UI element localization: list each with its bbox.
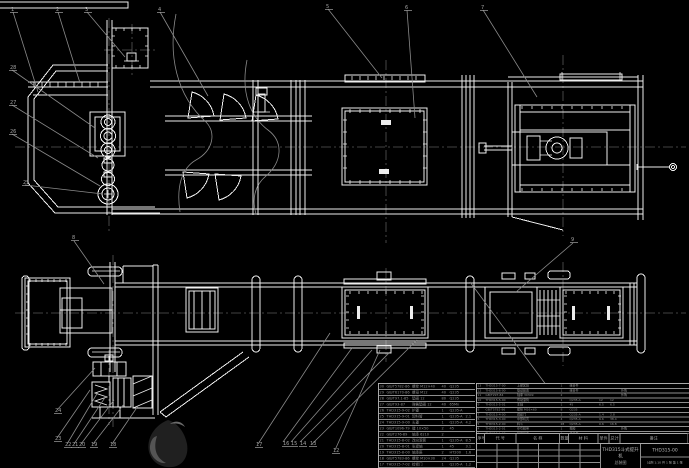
bom-cell-name: 螺栓 M12×40	[412, 384, 442, 389]
bom-cell-name: 轴承座	[412, 450, 442, 455]
bom-cell-no: 22	[380, 432, 387, 437]
balloon-label: 13	[310, 441, 316, 447]
bom-cell-material: Q235-A	[450, 414, 466, 419]
bom-header-no: 序号	[477, 434, 485, 444]
bom-cell-code: THD315-9-00	[387, 420, 413, 425]
bom-cell-total-weight: 12	[610, 398, 621, 402]
bom-cell-total-weight	[471, 432, 476, 437]
signature-cell	[559, 462, 580, 468]
bom-cell-unit-weight	[599, 408, 610, 412]
bom-cell-code: THD315-7-02	[387, 462, 413, 467]
bom-cell-no: 26	[380, 408, 387, 413]
drawing-number-cell: THD315-00 比例 1:10 共 1 张 第 1 张	[641, 444, 689, 468]
bom-cell-no: 24	[380, 420, 387, 425]
bom-cell-code: THD315-8-00	[387, 450, 413, 455]
bom-cell-qty: 40	[442, 402, 450, 407]
bom-cell-code: GB/T5782-86	[387, 384, 413, 389]
balloon-label: 27	[10, 100, 16, 106]
bom-cell-remark: 外购	[621, 427, 689, 431]
bom-cell-unit-weight: 6.5	[599, 403, 610, 407]
bom-cell-qty: 2	[442, 426, 450, 431]
bom-cell-qty: 1	[442, 444, 450, 449]
bom-cell-material: Q235	[450, 456, 466, 461]
bom-header-material: 材 料	[569, 434, 599, 444]
bom-cell-material: 橡胶	[570, 427, 600, 431]
bom-cell-qty: 1	[442, 408, 450, 413]
balloon-label: 9	[571, 237, 574, 243]
balloon-label: 21	[72, 442, 78, 448]
bolted-cover	[560, 287, 623, 338]
bom-cell-remark	[621, 418, 689, 422]
bom-cell-qty: 1	[561, 384, 570, 388]
signature-cell	[518, 462, 539, 468]
cover-handle	[607, 306, 610, 320]
bom-cell-qty: 1	[442, 420, 450, 425]
bom-left-rows: 30 GB/T5782-86 螺栓 M12×40 40 Q235 29 GB/T…	[378, 383, 475, 468]
bom-cell-name: 改向滚筒	[412, 438, 442, 443]
door-handle	[357, 306, 360, 319]
bom-cell-no: 9	[478, 403, 486, 407]
bom-cell-name: 弹簧垫圈 12	[412, 402, 442, 407]
bom-cell-remark	[621, 403, 689, 407]
balloon-label: 16	[283, 441, 289, 447]
bom-cell-qty: 2	[561, 394, 570, 398]
balloon-label: 17	[256, 442, 262, 448]
balloon-label: 4	[158, 7, 161, 13]
balloon-label: 25	[23, 180, 29, 186]
balloon-label: 28	[10, 65, 16, 71]
bom-cell-total-weight	[610, 408, 621, 412]
bom-cell-no: 13	[478, 384, 486, 388]
bom-cell-code: GB/T6170-86	[387, 390, 413, 395]
bom-cell-name: 垫圈 12	[412, 396, 442, 401]
bom-cell-remark	[621, 384, 689, 388]
bom-header-total: 总计	[609, 434, 620, 444]
bom-header-code: 代 号	[485, 434, 517, 444]
balloon-label: 5	[326, 4, 329, 10]
bom-cell-remark	[621, 408, 689, 412]
bom-cell-material: 组合件	[570, 384, 600, 388]
door-handle	[410, 306, 413, 319]
bom-cell-material	[570, 394, 600, 398]
bom-cell-qty: 28	[561, 422, 570, 426]
bom-cell-qty: 1	[561, 403, 570, 407]
bom-cell-no: 10	[478, 398, 486, 402]
bom-cell-total-weight	[471, 414, 476, 419]
bom-cell-no: 20	[380, 444, 387, 449]
bom-cell-no: 12	[478, 389, 486, 393]
bom-cell-code: THD315-4-00	[486, 413, 518, 417]
bom-cell-no: 7	[478, 413, 486, 417]
bom-cell-no: 6	[478, 418, 486, 422]
bom-cell-code: GB/T1096-79	[387, 426, 413, 431]
swirl-watermark	[148, 420, 187, 467]
bom-cell-total-weight	[471, 426, 476, 431]
bom-cell-material: HT200	[450, 450, 466, 455]
bom-cell-code: THD315-5-01	[486, 403, 518, 407]
bom-cell-material: Q235-A	[570, 413, 600, 417]
bom-cell-remark	[621, 413, 689, 417]
bolt-detail-small	[127, 53, 136, 61]
bom-cell-name: 上部区段	[517, 384, 561, 388]
casing-walls	[115, 283, 637, 345]
bom-header-unit: 单件	[598, 434, 609, 444]
bom-cell-remark	[621, 398, 689, 402]
bom-cell-unit-weight: 0.6	[599, 422, 610, 426]
bom-cell-code: THD315-5-00	[486, 398, 518, 402]
bom-cell-no: 27	[380, 402, 387, 407]
balloon-label: 22	[65, 442, 71, 448]
bom-cell-code: GB/T5782-86	[486, 408, 518, 412]
bom-cell-remark	[621, 422, 689, 426]
balloon-label: 7	[481, 5, 484, 11]
bom-cell-total-weight: 2.8	[610, 413, 621, 417]
bom-cell-remark: 外购	[621, 394, 689, 398]
bom-cell-qty: 8	[561, 408, 570, 412]
boot-section	[28, 20, 160, 215]
takeup-drive-detail	[92, 355, 155, 418]
bom-cell-material: Q235-A	[570, 398, 600, 402]
balloon-label: 26	[10, 129, 16, 135]
inlet-grate	[186, 288, 218, 332]
bom-cell-qty: 24	[442, 456, 450, 461]
bom-cell-total-weight	[471, 462, 476, 467]
bom-cell-name: 主轴	[517, 403, 561, 407]
balloon-label: 19	[91, 442, 97, 448]
bom-header-name: 名 称	[516, 434, 560, 444]
bom-cell-code: THD315-8-02	[387, 438, 413, 443]
bucket	[188, 92, 214, 118]
bom-table-left: 30 GB/T5782-86 螺栓 M12×40 40 Q235 29 GB/T…	[378, 383, 475, 468]
bom-cell-material: Q235	[450, 384, 466, 389]
bom-cell-material: 组合件	[570, 389, 600, 393]
drawing-title-cell: THD315斗式提升机 总装图	[601, 444, 641, 468]
balloon-label: 20	[79, 442, 85, 448]
door-handle	[379, 169, 389, 174]
bom-cell-name: 轴承 30309	[517, 394, 561, 398]
balloon-label: 6	[405, 5, 408, 11]
bom-cell-total-weight: 6.5	[610, 403, 621, 407]
bom-cell-total-weight	[610, 394, 621, 398]
bom-cell-code: GB/T97.1-85	[387, 396, 413, 401]
discharge-edge	[512, 217, 563, 230]
bom-cell-total-weight	[471, 456, 476, 461]
bom-cell-total-weight: 38.4	[610, 418, 621, 422]
bom-cell-qty: 1	[561, 389, 570, 393]
bom-cell-code: GB/T297-84	[486, 394, 518, 398]
bom-cell-unit-weight	[599, 384, 610, 388]
bom-cell-no: 11	[478, 394, 486, 398]
balloon-label: 2	[56, 7, 59, 13]
bom-header-qty: 数量	[560, 434, 569, 444]
bom-cell-total-weight	[471, 444, 476, 449]
balloon-label: 14	[300, 441, 306, 447]
bom-cell-name: 头罩	[412, 420, 442, 425]
bom-cell-material	[450, 432, 466, 437]
signature-cell	[538, 462, 559, 468]
bom-cell-total-weight	[471, 402, 476, 407]
break-line	[245, 60, 279, 214]
drawing-type: 总装图	[601, 460, 640, 466]
bom-cell-material: Q235-A	[450, 462, 466, 467]
bom-cell-total-weight	[471, 384, 476, 389]
bom-cell-qty: 2	[442, 450, 450, 455]
bom-cell-material: Q235-A	[450, 438, 466, 443]
bom-cell-name: 螺栓 M16×60	[517, 408, 561, 412]
bom-cell-unit-weight: 1.4	[599, 413, 610, 417]
bom-cell-name: 护罩	[412, 408, 442, 413]
bom-cell-no: 25	[380, 414, 387, 419]
takeup-pulley-train	[98, 115, 118, 204]
bom-cell-unit-weight	[599, 394, 610, 398]
bom-cell-unit-weight	[599, 427, 610, 431]
balloon-label: 8	[72, 235, 75, 241]
bom-cell-qty: 2	[561, 413, 570, 417]
bom-cell-name: 轴承 6210	[412, 432, 442, 437]
bom-cell-code: THD315-7-00	[486, 384, 518, 388]
bom-cell-qty: 4	[561, 418, 570, 422]
bom-cell-no: 30	[380, 384, 387, 389]
bom-cell-code: THD315-9-02	[387, 408, 413, 413]
bom-cell-name: 螺栓 M10×30	[412, 456, 442, 461]
top-view	[28, 14, 677, 230]
bom-cell-qty: 1	[442, 438, 450, 443]
signature-cell	[497, 462, 518, 468]
bom-cell-qty: 1	[561, 398, 570, 402]
signature-cell	[477, 462, 498, 468]
bom-cell-total-weight	[471, 396, 476, 401]
balloon-label: 12	[333, 448, 339, 454]
bom-cell-name: 料斗	[517, 422, 561, 426]
bom-cell-name: 观察门	[517, 413, 561, 417]
signature-grid	[477, 444, 601, 468]
bom-cell-no: 4	[478, 427, 486, 431]
bom-cell-qty: 1	[561, 427, 570, 431]
bucket-belt-section	[165, 14, 312, 214]
bom-cell-material: 45	[570, 403, 600, 407]
bom-cell-no: 5	[478, 422, 486, 426]
balloon-label: 15	[291, 441, 297, 447]
bom-cell-material: Q235-A	[450, 420, 466, 425]
bom-cell-no: 8	[478, 408, 486, 412]
bom-cell-material: Q235	[570, 408, 600, 412]
bom-cell-total-weight	[471, 438, 476, 443]
balloon-label: 23	[55, 436, 61, 442]
bom-header-remark: 备注	[620, 434, 688, 444]
bom-cell-material: Q235	[450, 396, 466, 401]
bom-cell-qty: 1	[442, 462, 450, 467]
bom-cell-name: 张紧轴	[412, 444, 442, 449]
bom-cell-code: THD315-2-00	[486, 422, 518, 426]
bom-cell-no: 28	[380, 396, 387, 401]
bom-cell-name: 卸料管	[412, 414, 442, 419]
bom-cell-code: THD315-9-01	[387, 414, 413, 419]
bom-cell-no: 19	[380, 450, 387, 455]
balloon-label: 3	[85, 7, 88, 13]
bom-cell-total-weight	[471, 408, 476, 413]
door-handle	[381, 120, 391, 125]
coupling-circle	[546, 137, 568, 159]
bom-cell-code: THD315-6-00	[486, 389, 518, 393]
bom-cell-remark: 外购	[621, 389, 689, 393]
title-block: THD315斗式提升机 总装图 THD315-00 比例 1:10 共 1 张 …	[476, 443, 689, 468]
drive-unit	[479, 132, 607, 165]
bom-cell-total-weight	[471, 420, 476, 425]
product-name: THD315斗式提升机	[601, 447, 640, 460]
bom-cell-no: 21	[380, 438, 387, 443]
bom-cell-code: THD315-2-01	[486, 427, 518, 431]
bom-cell-name: 传动滚筒	[517, 398, 561, 402]
bom-cell-unit-weight	[599, 389, 610, 393]
drawing-number: THD315-00	[641, 444, 689, 458]
bom-cell-material: Q235-A	[570, 422, 600, 426]
bucket	[215, 174, 241, 200]
cad-drawing-canvas[interactable]: 1234567282726258924232221201918171615141…	[0, 0, 689, 468]
scale-sheet-info: 比例 1:10 共 1 张 第 1 张	[641, 457, 689, 468]
bom-cell-no: 17	[380, 462, 387, 467]
bom-cell-name: 螺母 M12	[412, 390, 442, 395]
mid-casing	[253, 75, 427, 215]
spring	[95, 385, 107, 405]
bom-cell-name: 驱动装置	[517, 389, 561, 393]
bom-cell-unit-weight: 12	[599, 398, 610, 402]
balloon-label: 1	[11, 7, 14, 13]
bom-cell-name: 检修门	[412, 462, 442, 467]
bom-cell-no: 23	[380, 426, 387, 431]
bom-cell-material: 45	[450, 426, 466, 431]
bom-cell-qty: 40	[442, 384, 450, 389]
bucket	[183, 172, 209, 198]
bom-cell-total-weight: 16.8	[610, 422, 621, 426]
bom-cell-code: GB/T5783-86	[387, 456, 413, 461]
bom-cell-qty: 2	[442, 432, 450, 437]
bom-cell-total-weight	[471, 450, 476, 455]
balloon-label: 24	[55, 408, 61, 414]
bom-cell-material: Q235	[450, 390, 466, 395]
bom-cell-material: 45	[450, 444, 466, 449]
bom-cell-unit-weight: 9.6	[599, 418, 610, 422]
bom-cell-code: THD315-8-01	[387, 444, 413, 449]
bom-cell-code: GB/T276-89	[387, 432, 413, 437]
bom-cell-total-weight	[610, 427, 621, 431]
bom-cell-code: THD315-3-00	[486, 418, 518, 422]
bom-cell-no: 18	[380, 456, 387, 461]
bom-cell-qty: 80	[442, 396, 450, 401]
cover-handle	[572, 306, 575, 320]
bom-cell-name: 键 10×50	[412, 426, 442, 431]
bom-cell-name: 中部机壳	[517, 418, 561, 422]
bom-cell-material: Q235-A	[450, 408, 466, 413]
bom-cell-no: 29	[380, 390, 387, 395]
signature-cell	[580, 462, 601, 468]
frame-corner	[0, 2, 128, 8]
bom-cell-material: 65Mn	[450, 402, 466, 407]
bom-cell-qty: 1	[442, 414, 450, 419]
bom-right-rows: 13 THD315-7-00 上部区段 1 组合件 12 THD315-6-00…	[476, 383, 689, 433]
belt-lines	[165, 116, 312, 175]
shaft-end	[479, 143, 486, 153]
head-section	[462, 72, 677, 230]
bom-cell-total-weight	[471, 390, 476, 395]
bom-header-band: 序号 代 号 名 称 数量 材 料 单件 总计 备注	[476, 433, 689, 443]
bom-cell-total-weight	[610, 384, 621, 388]
bom-cell-qty: 40	[442, 390, 450, 395]
balloon-label: 18	[110, 442, 116, 448]
bom-cell-material: Q235-A	[570, 418, 600, 422]
bom-cell-name: 牵引胶带	[517, 427, 561, 431]
bom-cell-total-weight	[610, 389, 621, 393]
bom-cell-code: GB/T93-87	[387, 402, 413, 407]
bom-table-right: 13 THD315-7-00 上部区段 1 组合件 12 THD315-6-00…	[476, 383, 689, 433]
